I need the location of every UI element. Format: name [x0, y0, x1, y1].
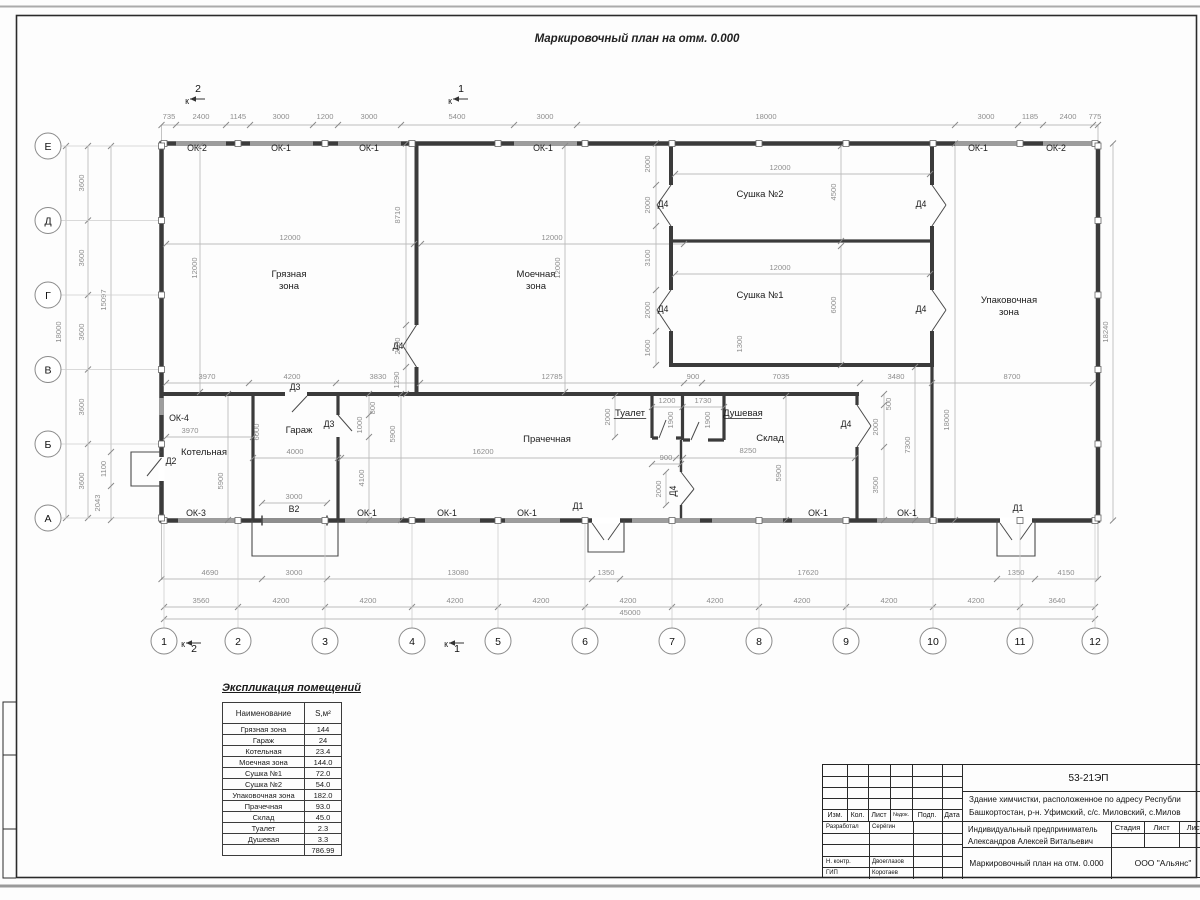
explication-row: Туалет2.3 [223, 823, 342, 834]
rev-col-data: Дата [942, 809, 962, 821]
explication-cell: Гараж [223, 735, 305, 746]
dim-text: 4200 [447, 596, 464, 605]
room-label: Моечная [517, 269, 556, 280]
explication-cell: 72.0 [305, 768, 342, 779]
dim-text: 45000 [619, 608, 640, 617]
interior-wall-partition [253, 241, 932, 521]
dim-text: 3000 [361, 112, 378, 121]
dim-text: 735 [163, 112, 176, 121]
dim-text: 8710 [393, 207, 402, 224]
dim-text: 775 [1089, 112, 1102, 121]
column-marker [159, 292, 165, 298]
mark-label: к [448, 96, 452, 106]
column-marker [322, 141, 328, 147]
dim-text: 16200 [472, 447, 493, 456]
dim-text: 3830 [370, 372, 387, 381]
mark-label: ОК-1 [271, 143, 291, 153]
room-label: Упаковочная [981, 295, 1037, 306]
garage-gate [262, 516, 327, 526]
mark-label: Д4 [658, 199, 669, 209]
dim-text: 18240 [1101, 321, 1110, 342]
axis-letter: А [44, 513, 51, 525]
listov-col: Листо [1179, 821, 1200, 833]
dim-text: 1350 [1008, 568, 1025, 577]
dim-text: 7300 [903, 437, 912, 454]
dim-text: 1 [454, 643, 460, 655]
rev-col-ndok: №док. [890, 809, 912, 821]
mark-label: ОК-2 [1046, 143, 1066, 153]
dim-text: 1145 [230, 112, 246, 121]
axis-number: 2 [235, 636, 241, 648]
dimension-lines [66, 125, 1113, 619]
column-marker [159, 515, 165, 521]
dim-text: 4500 [829, 184, 838, 201]
explication-cell: Котельная [223, 746, 305, 757]
dim-text: 12000 [541, 233, 562, 242]
dim-text: 3000 [273, 112, 290, 121]
mark-label: Д2 [166, 456, 177, 466]
column-marker [495, 518, 501, 524]
dim-text: 3640 [1049, 596, 1066, 605]
exterior-wall [162, 144, 1099, 521]
explication-cell: Моечная зона [223, 757, 305, 768]
explication-cell: Грязная зона [223, 724, 305, 735]
dim-text: 2000 [643, 156, 652, 173]
name-gip: Коротаев [869, 867, 916, 879]
explication-cell: Сушка №1 [223, 768, 305, 779]
name-razrab: Серёгин [869, 821, 916, 833]
dim-text: 2000 [603, 409, 612, 426]
sheet: { "title": "Маркировочный план на отм. 0… [0, 0, 1200, 900]
windows [162, 144, 1094, 521]
role-gip: ГИП [823, 867, 872, 879]
dim-text: 5400 [449, 112, 466, 121]
explication-cell: 93.0 [305, 801, 342, 812]
mark-label: ОК-1 [808, 508, 828, 518]
column-marker [1095, 367, 1101, 373]
column-marker [756, 518, 762, 524]
dim-text: 3560 [193, 596, 210, 605]
mark-label: Д4 [393, 341, 404, 351]
dim-text: 3600 [77, 175, 86, 192]
dim-text: 12000 [769, 163, 790, 172]
dim-text: 1350 [598, 568, 615, 577]
dim-text: 8700 [1004, 372, 1021, 381]
dim-text: 1600 [643, 340, 652, 357]
explication-cell: 23.4 [305, 746, 342, 757]
dim-text: 2400 [193, 112, 210, 121]
explication-cell: 45.0 [305, 812, 342, 823]
explication: Экспликация помещений Наименование S,м² … [222, 682, 361, 856]
generated-annotations: 7352400114530001200300054003000180003000… [35, 83, 1116, 655]
dim-text: 1200 [659, 396, 676, 405]
axis-number: 6 [582, 636, 588, 648]
dim-text: 3970 [182, 426, 199, 435]
column-marker [1017, 141, 1023, 147]
column-marker [1095, 441, 1101, 447]
explication-row: 786.99 [223, 845, 342, 856]
section-arrow [190, 96, 196, 102]
dim-text: 8250 [740, 446, 757, 455]
client-line1: Индивидуальный предприниматель [965, 823, 1114, 835]
dim-text: 18000 [755, 112, 776, 121]
mark-label: ОК-1 [897, 508, 917, 518]
room-label: Душевая [723, 408, 763, 419]
stage-col: Стадия [1111, 821, 1144, 833]
dim-text: 17620 [797, 568, 818, 577]
dim-text: 900 [660, 453, 673, 462]
mark-label: ОК-1 [359, 143, 379, 153]
column-marker [669, 141, 675, 147]
dim-text: 3600 [77, 324, 86, 341]
dim-text: 12000 [279, 233, 300, 242]
explication-row: Котельная23.4 [223, 746, 342, 757]
dim-text: 1100 [99, 461, 108, 477]
axis-letter: В [44, 365, 51, 377]
dim-text: 2043 [93, 495, 102, 512]
dim-text: 4200 [620, 596, 637, 605]
dim-text: 1900 [703, 412, 712, 429]
page-title: Маркировочный план на отм. 0.000 [470, 33, 804, 45]
doc-number: 53-21ЭП [962, 765, 1200, 791]
walls [162, 144, 1099, 521]
dim-text: 13080 [447, 568, 468, 577]
explication-row: Гараж24 [223, 735, 342, 746]
axis-number: 8 [756, 636, 762, 648]
dim-text: 7035 [773, 372, 790, 381]
list-col: Лист [1144, 821, 1179, 833]
dim-text: 4200 [968, 596, 985, 605]
room-label: Гараж [286, 425, 313, 436]
rev-col-list: Лист [868, 809, 890, 821]
mark-label: ОК-1 [517, 508, 537, 518]
dim-text: 3600 [77, 250, 86, 267]
dim-text: 1185 [1022, 112, 1038, 121]
dim-text: 900 [687, 372, 700, 381]
explication-cell: 144 [305, 724, 342, 735]
column-marker [1095, 143, 1101, 149]
mark-label: ОК-2 [187, 143, 207, 153]
mark-label: Д4 [658, 304, 669, 314]
explication-col-name: Наименование [223, 703, 305, 724]
axis-letter: Д [44, 216, 51, 228]
room-label: Грязная [272, 269, 307, 280]
explication-cell [223, 845, 305, 856]
dim-text: 1 [458, 83, 464, 95]
axis-number: 5 [495, 636, 501, 648]
mark-label: ОК-1 [437, 508, 457, 518]
rev-col-izm: Изм. [823, 809, 847, 821]
room-label: зона [526, 281, 547, 292]
column-marker [582, 518, 588, 524]
axis-letter: Е [44, 141, 51, 153]
dim-text: 3600 [77, 399, 86, 416]
role-nkontr: Н. контр. [823, 856, 872, 867]
role-razrab: Разработал [823, 821, 872, 833]
column-marker [159, 441, 165, 447]
mark-label: Д3 [290, 382, 301, 392]
dim-text: 1900 [666, 412, 675, 429]
explication-row: Душевая3.3 [223, 834, 342, 845]
dim-text: 3000 [978, 112, 995, 121]
explication-cell: Склад [223, 812, 305, 823]
column-marker [843, 141, 849, 147]
explication-row: Сушка №172.0 [223, 768, 342, 779]
rev-col-podp: Подп. [912, 809, 942, 821]
dim-text: 4200 [284, 372, 301, 381]
axis-number: 1 [161, 636, 167, 648]
column-marker [1095, 292, 1101, 298]
rev-col-kol: Кол. [847, 809, 868, 821]
column-marker [409, 518, 415, 524]
explication-row: Упаковочная зона182.0 [223, 790, 342, 801]
dim-text: 12000 [769, 263, 790, 272]
dim-text: 4100 [357, 470, 366, 487]
dim-text: 5900 [216, 473, 225, 490]
dim-text: 1290 [392, 372, 401, 389]
mark-label: Д4 [841, 419, 852, 429]
client-line2: Александров Алексей Витальевич [965, 835, 1114, 847]
dim-text: 4200 [881, 596, 898, 605]
dim-text: 2400 [1060, 112, 1077, 121]
column-marker [930, 141, 936, 147]
explication-cell: Душевая [223, 834, 305, 845]
dim-text: 4690 [202, 568, 219, 577]
divider [942, 765, 943, 879]
axis-letter: Б [45, 439, 52, 451]
object-line2: Башкортостан, р-н. Уфимский, с/с. Миловс… [966, 806, 1200, 819]
explication-cell: 54.0 [305, 779, 342, 790]
dim-text: 3970 [199, 372, 216, 381]
explication-cell: Упаковочная зона [223, 790, 305, 801]
dim-text: 12000 [190, 257, 199, 278]
column-marker [582, 141, 588, 147]
column-marker [1095, 515, 1101, 521]
mark-label: Д4 [668, 485, 678, 496]
axis-number: 7 [669, 636, 675, 648]
mark-label: Д1 [1013, 503, 1024, 513]
room-label: Склад [756, 433, 784, 444]
explication-cell: 786.99 [305, 845, 342, 856]
title-block: Изм. Кол. Лист №док. Подп. Дата Разработ… [822, 764, 1200, 878]
axis-number: 3 [322, 636, 328, 648]
room-label: Прачечная [523, 434, 571, 445]
dim-text: 18000 [54, 321, 63, 342]
explication-title: Экспликация помещений [222, 682, 361, 694]
dim-text: 3000 [537, 112, 554, 121]
explication-row: Сушка №254.0 [223, 779, 342, 790]
dim-text: 18000 [942, 409, 951, 430]
axis-letter: Г [45, 290, 51, 302]
dim-text: 2 [195, 83, 201, 95]
room-label: Сушка №1 [737, 290, 784, 301]
room-label: Котельная [181, 447, 227, 458]
dim-text: 1000 [355, 417, 364, 434]
object-line1: Здание химчистки, расположенное по адрес… [966, 793, 1200, 806]
axis-number: 10 [927, 636, 939, 648]
column-marker [159, 143, 165, 149]
explication-header-row: Наименование S,м² [223, 703, 342, 724]
explication-cell: 144.0 [305, 757, 342, 768]
explication-row: Прачечная93.0 [223, 801, 342, 812]
dim-text: 2000 [654, 481, 663, 498]
dim-text: 1300 [735, 336, 744, 353]
mark-label: Д4 [916, 304, 927, 314]
dim-text: 3000 [286, 568, 303, 577]
room-label: Сушка №2 [737, 189, 784, 200]
mark-label: к [444, 639, 448, 649]
dim-text: 3600 [77, 473, 86, 490]
divider [1111, 833, 1200, 834]
name-nkontr: Двоеглазов [869, 856, 916, 867]
column-marker [669, 518, 675, 524]
divider [962, 791, 1200, 792]
dim-text: 4200 [707, 596, 724, 605]
column-marker [159, 218, 165, 224]
room-label: Туалет [615, 408, 646, 419]
dim-text: 2000 [871, 419, 880, 436]
dim-text: 4000 [287, 447, 304, 456]
dim-text: 12785 [541, 372, 562, 381]
dim-text: 4200 [360, 596, 377, 605]
column-marker [1017, 518, 1023, 524]
dim-text: 5900 [774, 465, 783, 482]
room-label: зона [999, 307, 1020, 318]
column-marker [159, 367, 165, 373]
dim-text: 4200 [794, 596, 811, 605]
column-marker [930, 518, 936, 524]
explication-cell: 2.3 [305, 823, 342, 834]
explication-cell: 182.0 [305, 790, 342, 801]
dim-text: 15097 [99, 289, 108, 310]
dim-text: 2000 [643, 302, 652, 319]
room-label: зона [279, 281, 300, 292]
column-marker [756, 141, 762, 147]
dim-text: 6000 [252, 424, 261, 441]
dim-text: 2 [191, 643, 197, 655]
column-marker [409, 141, 415, 147]
column-marker [843, 518, 849, 524]
dim-text: 5900 [388, 426, 397, 443]
column-marker [235, 518, 241, 524]
axis-number: 9 [843, 636, 849, 648]
explication-cell: 3.3 [305, 834, 342, 845]
column-marker [322, 518, 328, 524]
dim-text: 800 [368, 402, 377, 415]
mark-label: ОК-1 [357, 508, 377, 518]
explication-row: Склад45.0 [223, 812, 342, 823]
dim-text: 6000 [829, 297, 838, 314]
company-name: ООО "Альянс" [1111, 847, 1200, 879]
mark-label: В2 [289, 504, 300, 514]
mark-label: ОК-1 [533, 143, 553, 153]
explication-cell: Туалет [223, 823, 305, 834]
axis-number: 12 [1089, 636, 1101, 648]
column-marker [1095, 218, 1101, 224]
sheet-frame [0, 7, 1200, 887]
explication-row: Моечная зона144.0 [223, 757, 342, 768]
dim-text: 3500 [871, 477, 880, 494]
column-marker [235, 141, 241, 147]
dim-text: 3000 [286, 492, 303, 501]
explication-cell: Прачечная [223, 801, 305, 812]
section-arrow [453, 96, 459, 102]
explication-cell: 24 [305, 735, 342, 746]
mark-label: ОК-3 [186, 508, 206, 518]
axis-number: 4 [409, 636, 415, 648]
dim-text: 4200 [533, 596, 550, 605]
mark-label: Д4 [916, 199, 927, 209]
mark-label: ОК-1 [968, 143, 988, 153]
section-marks [186, 96, 468, 646]
explication-table: Наименование S,м² Грязная зона144Гараж24… [222, 702, 342, 856]
mark-label: к [181, 639, 185, 649]
mark-label: Д1 [573, 501, 584, 511]
explication-col-area: S,м² [305, 703, 342, 724]
dim-text: 3100 [643, 250, 652, 267]
dim-text: 2000 [643, 197, 652, 214]
mark-label: ОК-4 [169, 413, 189, 423]
column-marker [495, 141, 501, 147]
mark-label: к [185, 96, 189, 106]
explication-row: Грязная зона144 [223, 724, 342, 735]
dim-text: 1200 [317, 112, 334, 121]
dim-text: 3480 [888, 372, 905, 381]
axis-number: 11 [1015, 636, 1026, 648]
dim-text: 1730 [695, 396, 712, 405]
dim-text: 4200 [273, 596, 290, 605]
mark-label: Д3 [324, 419, 335, 429]
drawing-name: Маркировочный план на отм. 0.000 [962, 847, 1111, 879]
dim-text: 4150 [1058, 568, 1075, 577]
explication-cell: Сушка №2 [223, 779, 305, 790]
